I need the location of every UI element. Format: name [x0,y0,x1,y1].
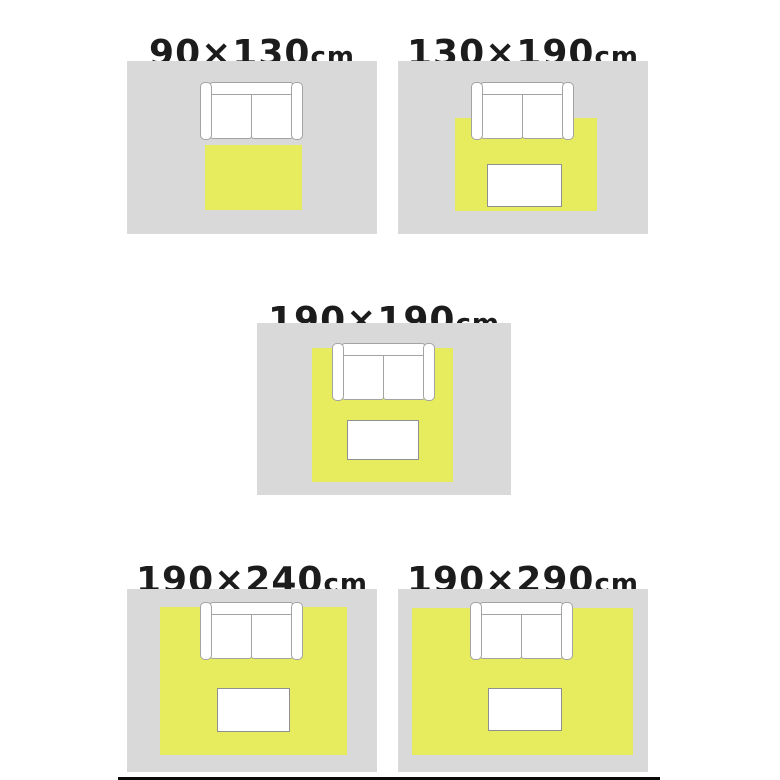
sofa-cushion [210,93,252,139]
low-table-icon [217,688,290,732]
room-floor [398,61,648,234]
size-panel-190x190: 190×190cm [257,265,511,500]
low-table-icon [487,164,562,207]
sofa-seat [210,93,293,139]
sofa-backrest [479,602,564,615]
sofa-cushion [383,354,425,400]
size-panel-190x240: 190×240cm [127,527,377,777]
sofa-armrest-right [562,82,574,140]
sofa-seat [342,354,425,400]
sofa-backrest [209,82,294,95]
sofa-armrest-right [291,82,303,140]
size-panel-190x290: 190×290cm [398,527,648,777]
size-panel-130x190: 130×190cm [398,0,648,240]
sofa-top-view-icon [471,82,574,140]
room-floor [398,589,648,772]
sofa-cushion [210,613,252,659]
low-table-icon [488,688,562,731]
sofa-cushion [522,93,564,139]
sofa-armrest-left [470,602,482,660]
rug-icon [205,145,302,210]
sofa-top-view-icon [470,602,573,660]
sofa-backrest [480,82,565,95]
room-floor [127,589,377,772]
sofa-seat [481,93,564,139]
sofa-armrest-right [561,602,573,660]
sofa-armrest-left [332,343,344,401]
sofa-cushion [251,93,293,139]
size-panel-90x130: 90×130cm [127,0,377,240]
sofa-cushion [521,613,563,659]
sofa-armrest-left [471,82,483,140]
room-floor [127,61,377,234]
sofa-armrest-left [200,602,212,660]
sofa-seat [480,613,563,659]
room-floor [257,323,511,495]
sofa-armrest-right [423,343,435,401]
sofa-cushion [342,354,384,400]
sofa-armrest-right [291,602,303,660]
sofa-cushion [251,613,293,659]
sofa-top-view-icon [200,602,303,660]
sofa-backrest [341,343,426,356]
sofa-seat [210,613,293,659]
sofa-cushion [480,613,522,659]
sofa-cushion [481,93,523,139]
low-table-icon [347,420,419,460]
sofa-backrest [209,602,294,615]
rug-size-guide-diagram: 90×130cm 130×190cm [0,0,780,780]
sofa-top-view-icon [332,343,435,401]
sofa-armrest-left [200,82,212,140]
sofa-top-view-icon [200,82,303,140]
